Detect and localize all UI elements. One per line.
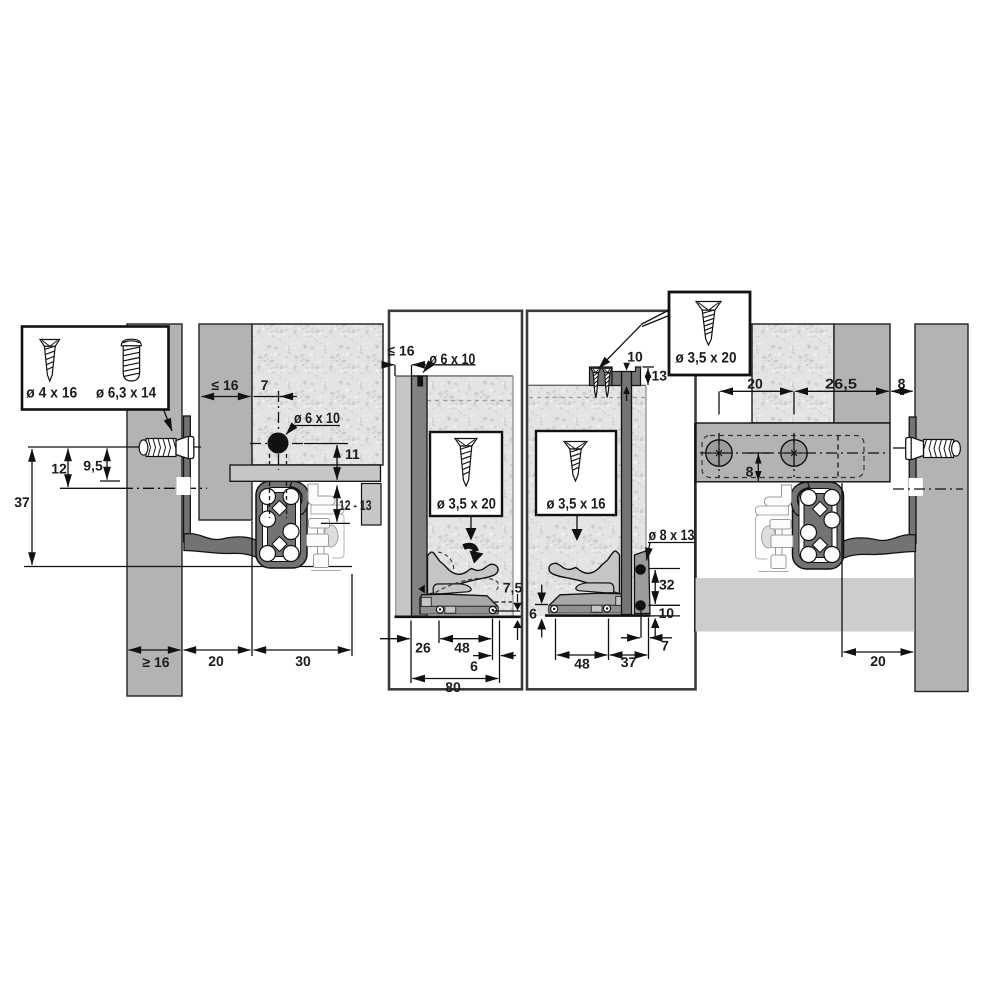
svg-text:ø 4 x 16: ø 4 x 16 xyxy=(26,385,77,402)
svg-text:48: 48 xyxy=(574,656,590,672)
svg-text:8: 8 xyxy=(898,376,906,392)
svg-text:37: 37 xyxy=(621,654,637,670)
svg-text:12: 12 xyxy=(51,461,67,477)
svg-text:≤ 16: ≤ 16 xyxy=(211,377,238,393)
svg-text:7,5: 7,5 xyxy=(503,580,523,596)
svg-text:48: 48 xyxy=(454,640,470,656)
svg-text:6: 6 xyxy=(529,606,537,622)
svg-text:ø 8 x 13: ø 8 x 13 xyxy=(649,527,695,544)
svg-text:ø 3,5 x 16: ø 3,5 x 16 xyxy=(547,496,606,513)
svg-text:30: 30 xyxy=(295,653,311,669)
svg-text:26: 26 xyxy=(415,640,431,656)
svg-text:80: 80 xyxy=(445,679,461,695)
svg-text:10: 10 xyxy=(627,349,643,365)
svg-text:20: 20 xyxy=(208,653,224,669)
svg-text:6: 6 xyxy=(470,658,478,674)
svg-text:12 - 13: 12 - 13 xyxy=(339,497,372,513)
svg-text:20: 20 xyxy=(870,653,886,669)
svg-text:32: 32 xyxy=(659,577,675,593)
svg-text:11: 11 xyxy=(345,446,360,462)
svg-text:≥ 16: ≥ 16 xyxy=(142,654,169,670)
svg-text:ø 6 x 10: ø 6 x 10 xyxy=(294,410,340,427)
svg-text:9,5: 9,5 xyxy=(83,458,103,474)
svg-text:26,5: 26,5 xyxy=(825,376,857,392)
svg-text:7: 7 xyxy=(661,638,669,654)
svg-text:13: 13 xyxy=(652,368,668,384)
svg-text:ø 6 x 10: ø 6 x 10 xyxy=(429,351,475,368)
svg-text:ø 3,5 x 20: ø 3,5 x 20 xyxy=(437,496,496,513)
svg-text:37: 37 xyxy=(14,494,30,510)
svg-text:ø 6,3 x 14: ø 6,3 x 14 xyxy=(96,385,157,402)
svg-text:ø 3,5 x 20: ø 3,5 x 20 xyxy=(676,350,737,367)
svg-text:10: 10 xyxy=(659,605,675,621)
svg-text:≤ 16: ≤ 16 xyxy=(387,343,414,359)
svg-text:20: 20 xyxy=(747,376,763,392)
svg-text:8: 8 xyxy=(746,464,754,480)
svg-text:7: 7 xyxy=(261,377,269,393)
